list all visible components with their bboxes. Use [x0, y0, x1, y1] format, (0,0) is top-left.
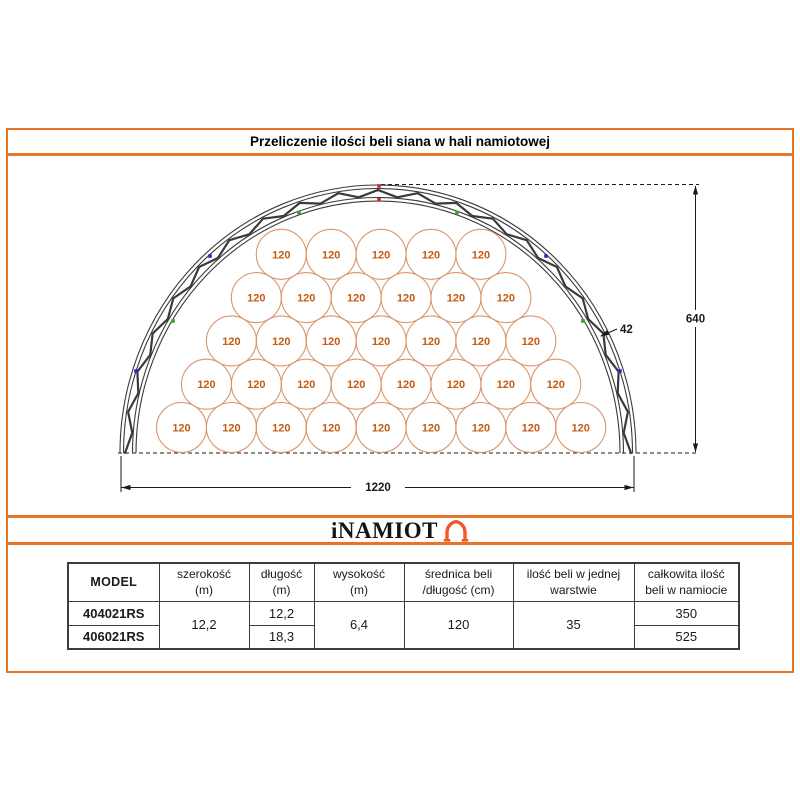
header-wysokosc: wysokość(m) — [314, 563, 404, 601]
dlugosc-cell: 18,3 — [249, 625, 314, 649]
hay-bale-label: 120 — [522, 423, 540, 435]
hay-bale-label: 120 — [222, 423, 240, 435]
calkowita-cell: 350 — [634, 601, 739, 625]
hay-bale-label: 120 — [372, 249, 390, 261]
hay-bale-label: 120 — [422, 423, 440, 435]
truss-marker-dot — [377, 198, 381, 202]
header-szerokosc: szerokość(m) — [159, 563, 249, 601]
hay-bale-label: 120 — [322, 423, 340, 435]
spec-table-section: MODEL szerokość(m) długość(m) wysokość(m… — [6, 543, 794, 673]
hay-bale-label: 120 — [347, 293, 365, 305]
header-dlugosc: długość(m) — [249, 563, 314, 601]
hay-bale-label: 120 — [322, 336, 340, 348]
srednica-cell: 120 — [404, 601, 513, 649]
model-cell: 406021RS — [68, 625, 159, 649]
truss-marker-dot — [544, 254, 548, 258]
model-cell: 404021RS — [68, 601, 159, 625]
hay-bale-label: 120 — [247, 293, 265, 305]
dim-truss-label: 42 — [620, 324, 633, 336]
hay-bale-label: 120 — [297, 379, 315, 391]
truss-marker-dot — [377, 184, 381, 188]
spec-table: MODEL szerokość(m) długość(m) wysokość(m… — [67, 562, 740, 650]
hay-bale-label: 120 — [497, 379, 515, 391]
logo-bar: iNAMIOT — [6, 516, 794, 544]
tent-cross-section-diagram: 1220640421201201201201201201201201201201… — [6, 154, 794, 517]
tent-diagram-svg: 1220640421201201201201201201201201201201… — [8, 156, 792, 515]
hay-bale-label: 120 — [547, 379, 565, 391]
hay-bale-label: 120 — [372, 423, 390, 435]
truss-marker-dot — [171, 319, 175, 323]
hay-bale-label: 120 — [497, 293, 515, 305]
hay-bale-label: 120 — [522, 336, 540, 348]
dim-width-arrow — [122, 485, 131, 490]
truss-chord-arc — [136, 201, 620, 453]
calkowita-cell: 525 — [634, 625, 739, 649]
hay-bale-label: 120 — [272, 423, 290, 435]
szerokosc-cell: 12,2 — [159, 601, 249, 649]
hay-bale-label: 120 — [397, 293, 415, 305]
truss-marker-dot — [297, 211, 301, 215]
dim-height-arrow — [693, 444, 698, 453]
truss-marker-dot — [134, 369, 138, 373]
hay-bale-label: 120 — [422, 249, 440, 261]
dim-height-label: 640 — [686, 314, 705, 326]
hay-bale-label: 120 — [397, 379, 415, 391]
dim-width-arrow — [625, 485, 634, 490]
hay-bale-label: 120 — [372, 336, 390, 348]
header-model: MODEL — [68, 563, 159, 601]
ilosc-warstwa-cell: 35 — [513, 601, 634, 649]
hay-bale-label: 120 — [247, 379, 265, 391]
dim-width-label: 1220 — [365, 482, 391, 494]
hay-bale-label: 120 — [447, 379, 465, 391]
dlugosc-cell: 12,2 — [249, 601, 314, 625]
tent-icon — [443, 519, 469, 542]
truss-marker-dot — [455, 211, 459, 215]
hay-bale-label: 120 — [472, 336, 490, 348]
hay-bale-label: 120 — [222, 336, 240, 348]
truss-chord-arc — [124, 189, 633, 454]
truss-marker-dot — [618, 369, 622, 373]
dim-height-arrow — [693, 186, 698, 195]
hay-bale-label: 120 — [347, 379, 365, 391]
hay-bale-label: 120 — [172, 423, 190, 435]
hay-bale-label: 120 — [472, 423, 490, 435]
header-calkowita: całkowita ilośćbeli w namiocie — [634, 563, 739, 601]
hay-bale-label: 120 — [272, 249, 290, 261]
header-ilosc-warstwa: ilość beli w jednejwarstwie — [513, 563, 634, 601]
header-srednica: średnica beli/długość (cm) — [404, 563, 513, 601]
hay-bale-label: 120 — [572, 423, 590, 435]
table-header-row: MODEL szerokość(m) długość(m) wysokość(m… — [68, 563, 739, 601]
table-row: 404021RS 12,2 12,2 6,4 120 35 350 — [68, 601, 739, 625]
hay-bale-label: 120 — [322, 249, 340, 261]
truss-chord-arc — [120, 185, 636, 453]
hay-bale-label: 120 — [472, 249, 490, 261]
wysokosc-cell: 6,4 — [314, 601, 404, 649]
hay-bale-label: 120 — [447, 293, 465, 305]
logo-text: iNAMIOT — [331, 519, 438, 542]
page-title: Przeliczenie ilości beli siana w hali na… — [250, 134, 550, 149]
hay-bale-label: 120 — [422, 336, 440, 348]
hay-bale-label: 120 — [297, 293, 315, 305]
hay-bale-label: 120 — [197, 379, 215, 391]
title-bar: Przeliczenie ilości beli siana w hali na… — [6, 128, 794, 155]
truss-marker-dot — [208, 254, 212, 258]
hay-bale-label: 120 — [272, 336, 290, 348]
truss-marker-dot — [581, 319, 585, 323]
